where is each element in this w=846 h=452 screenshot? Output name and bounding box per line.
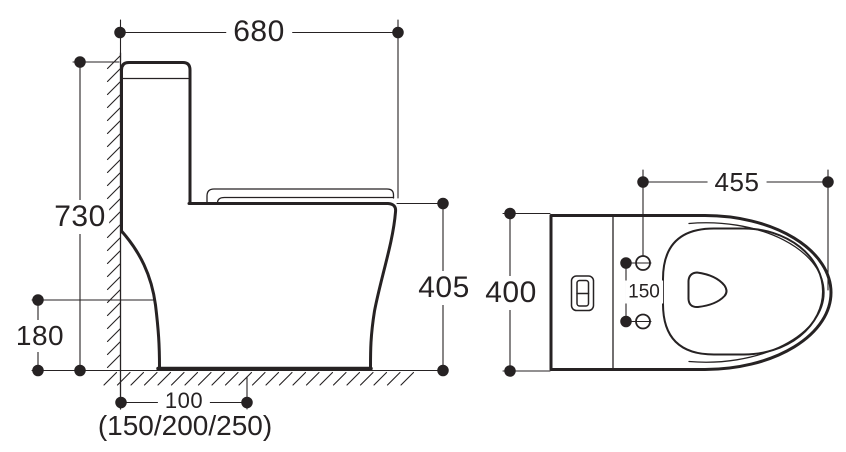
drawing-linework xyxy=(0,0,846,452)
dim-100-dot-left xyxy=(116,397,126,407)
seat-lid-profile xyxy=(207,189,394,202)
dim-730-dot-bottom xyxy=(75,365,85,375)
dim-label-overall-width-680: 680 xyxy=(226,16,292,48)
dim-455-dot-right xyxy=(823,177,833,187)
dim-label-rim-height-405: 405 xyxy=(415,271,473,305)
technical-drawing: 680 730 180 405 100 (150/200/250) 455 40… xyxy=(0,0,846,452)
dim-405-dot-bottom xyxy=(438,365,448,375)
tank-outline xyxy=(122,63,191,233)
dim-180-dot-top xyxy=(33,295,43,305)
dim-label-rough-in-options: (150/200/250) xyxy=(96,412,274,440)
flush-outlet-hole xyxy=(689,273,727,308)
dim-405-dot-top xyxy=(438,198,448,208)
dim-180-dot-bottom xyxy=(33,365,43,375)
dim-label-seat-length-455: 455 xyxy=(708,168,767,196)
dim-label-outlet-height-180: 180 xyxy=(13,320,67,352)
pedestal-back-curve xyxy=(122,231,160,367)
dim-150-dot-top xyxy=(621,258,631,268)
dim-680-dot-left xyxy=(115,27,125,37)
dim-680-dot-right xyxy=(393,27,403,37)
dim-label-overall-height-730: 730 xyxy=(51,200,109,234)
flush-button xyxy=(572,276,594,311)
floor-hatching xyxy=(104,373,414,386)
bowl-rim-and-front-edge xyxy=(189,204,396,368)
seat-opening xyxy=(663,229,823,355)
dim-400-dot-top xyxy=(505,208,515,218)
dim-150-dot-bottom xyxy=(621,316,631,326)
dim-455-dot-left xyxy=(638,177,648,187)
dim-label-bolt-spacing-150: 150 xyxy=(625,281,663,304)
dim-730-dot-top xyxy=(75,57,85,67)
dim-100-dot-right xyxy=(242,397,252,407)
dim-label-top-width-400: 400 xyxy=(482,276,540,310)
dim-400-dot-bottom xyxy=(505,366,515,376)
top-view xyxy=(503,170,833,376)
wall-hatching xyxy=(108,56,121,368)
